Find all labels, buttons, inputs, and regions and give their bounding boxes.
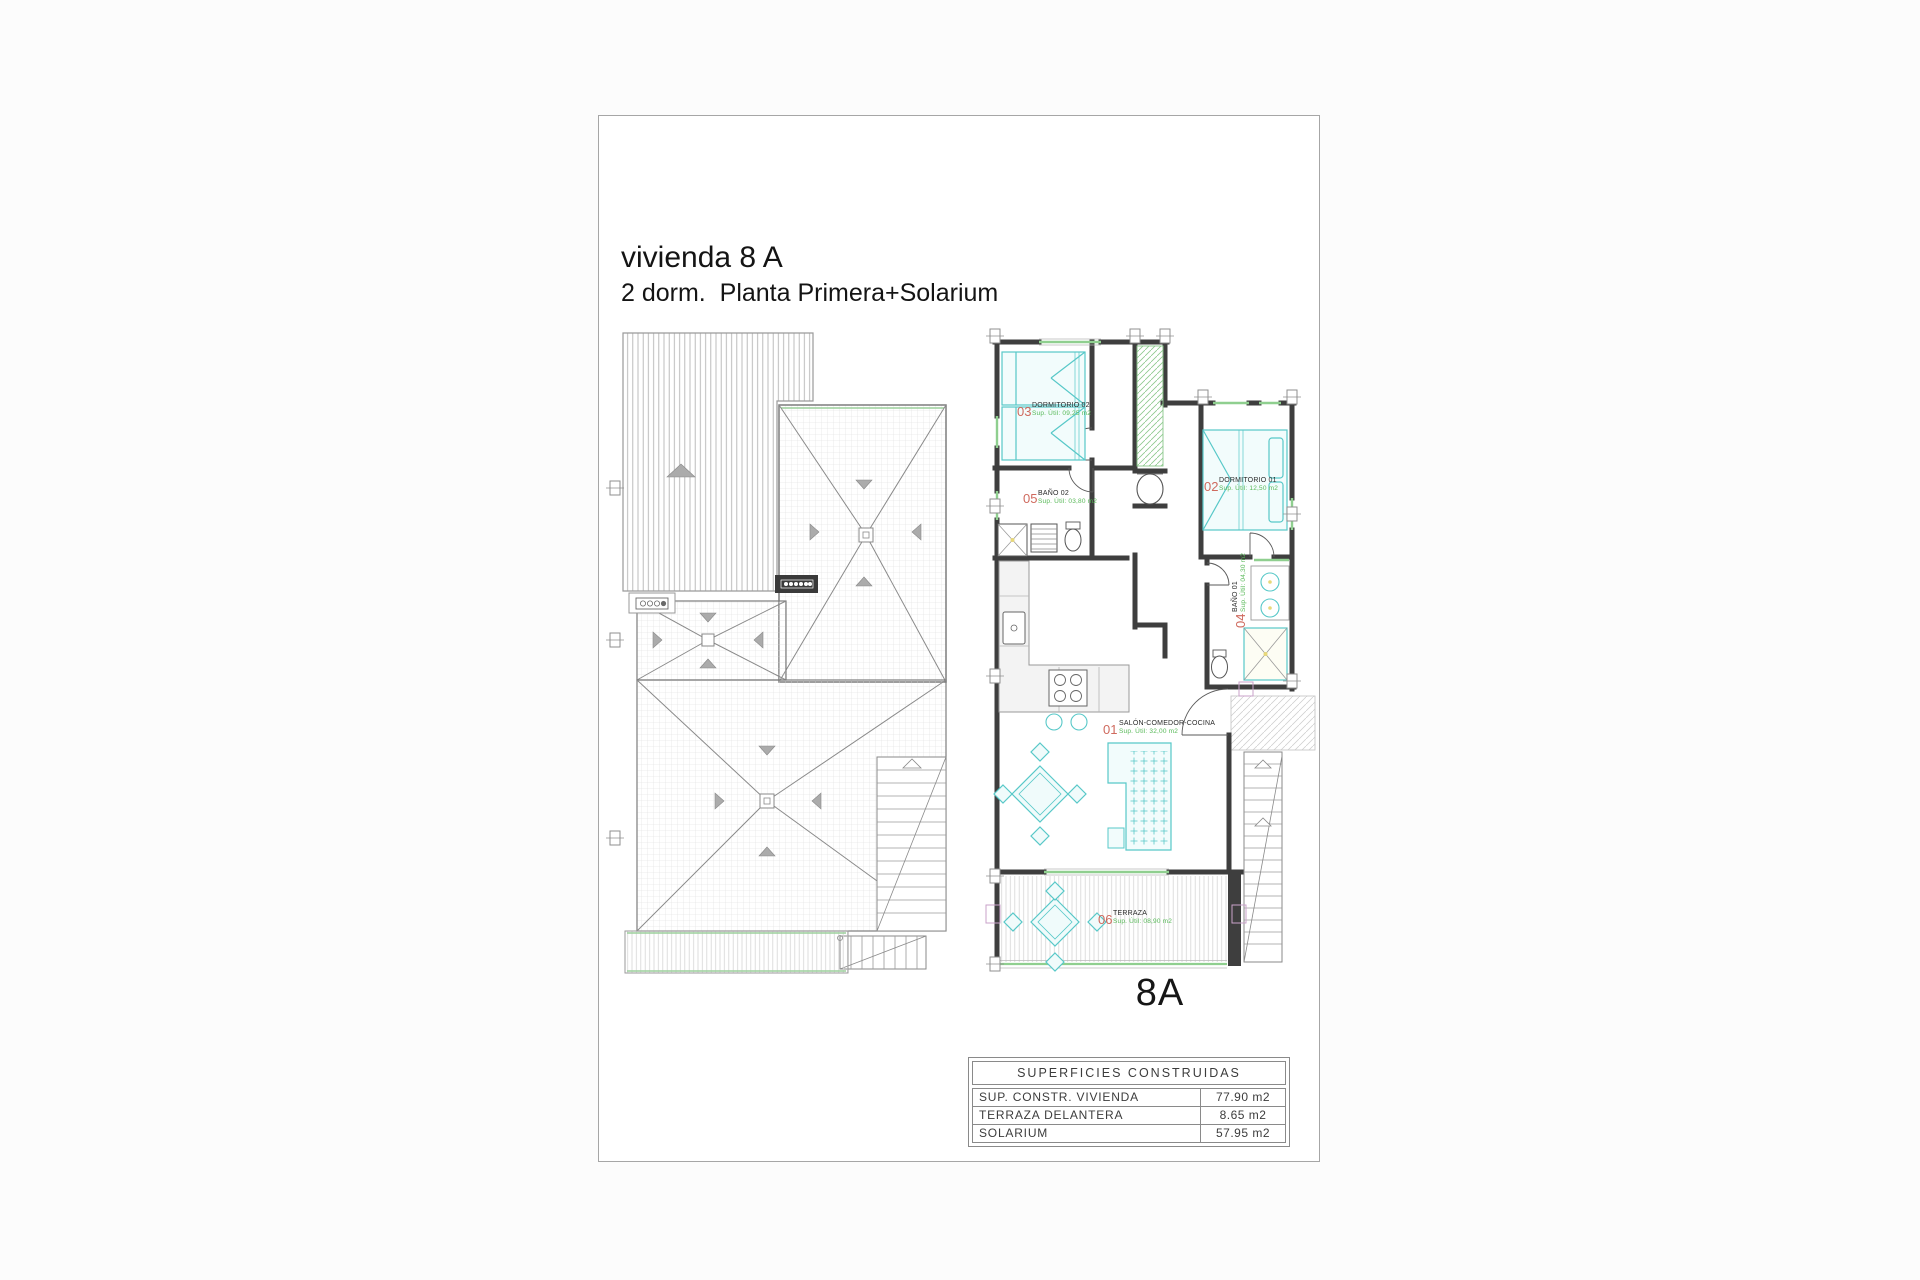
room-area: Sup. Útil: 09,25 m2	[1032, 408, 1091, 417]
room-number: 01	[1103, 722, 1117, 737]
floorplan-drawing: 03 DORMITORIO 02 Sup. Útil: 09,25 m2 05 …	[599, 116, 1321, 1163]
room-name: SALÓN-COMEDOR-COCINA	[1119, 718, 1215, 727]
area-value: 57.95 m2	[1200, 1125, 1285, 1142]
room-number: 04	[1233, 614, 1248, 628]
room-area: Sup. Útil: 12,50 m2	[1219, 483, 1278, 492]
room-number: 06	[1098, 912, 1112, 927]
room-area: Sup. Útil: 04,30 m2	[1238, 553, 1247, 612]
solarium-terrace-strip	[625, 931, 848, 973]
unit-label: 8A	[1118, 972, 1202, 1015]
room-area: Sup. Útil: 03,80 m2	[1038, 496, 1097, 505]
room-number: 03	[1017, 404, 1031, 419]
room-name: DORMITORIO 01	[1219, 477, 1277, 484]
roof-hip-upper	[779, 405, 946, 682]
dining-table	[994, 743, 1086, 845]
section-tick	[606, 831, 624, 845]
section-tick	[606, 481, 624, 495]
area-value: 77.90 m2	[1200, 1089, 1285, 1106]
exterior-hatch	[1231, 696, 1315, 750]
side-table	[1108, 828, 1124, 848]
solarium-lower-stairs	[840, 936, 926, 969]
room-label-dormitorio-01: 02 DORMITORIO 01 Sup. Útil: 12,50 m2	[1204, 477, 1278, 494]
solarium-stairs	[877, 757, 946, 931]
kitchen-sink	[1003, 612, 1025, 644]
room-name: TERRAZA	[1113, 910, 1147, 917]
section-tick	[606, 633, 624, 647]
table-row: SOLARIUM 57.95 m2	[973, 1124, 1285, 1142]
stool	[1046, 714, 1062, 730]
room-number: 02	[1204, 479, 1218, 494]
room-label-dormitorio-02: 03 DORMITORIO 02 Sup. Útil: 09,25 m2	[1017, 402, 1091, 419]
white-stamp-label	[629, 593, 675, 613]
areas-table-header: SUPERFICIES CONSTRUIDAS	[972, 1061, 1286, 1085]
room-area: Sup. Útil: 08,90 m2	[1113, 916, 1172, 925]
black-stamp-label	[775, 575, 818, 593]
room-name: DORMITORIO 02	[1032, 402, 1090, 409]
table-row: SUP. CONSTR. VIVIENDA 77.90 m2	[973, 1089, 1285, 1106]
area-value: 8.65 m2	[1200, 1107, 1285, 1124]
room-number: 05	[1023, 491, 1037, 506]
kitchen-counter	[999, 561, 1129, 730]
hall-basin	[1137, 474, 1163, 504]
room-name: BAÑO 01	[1230, 581, 1239, 612]
sofa	[1108, 743, 1171, 850]
first-floor-plan: 03 DORMITORIO 02 Sup. Útil: 09,25 m2 05 …	[986, 329, 1315, 971]
bathroom-02-fixtures	[998, 522, 1081, 556]
drawing-sheet: vivienda 8 A 2 dorm. Planta Primera+Sola…	[598, 115, 1320, 1162]
room-label-bano-01: 04 BAÑO 01 Sup. Útil: 04,30 m2	[1230, 553, 1248, 628]
exterior-stairs	[1244, 752, 1282, 962]
room-name: BAÑO 02	[1038, 488, 1069, 497]
area-label: SOLARIUM	[973, 1125, 1200, 1142]
bathroom-01-fixtures	[1212, 566, 1290, 680]
area-label: SUP. CONSTR. VIVIENDA	[973, 1089, 1200, 1106]
areas-table-body: SUP. CONSTR. VIVIENDA 77.90 m2 TERRAZA D…	[972, 1088, 1286, 1143]
stool	[1071, 714, 1087, 730]
areas-table: SUPERFICIES CONSTRUIDAS SUP. CONSTR. VIV…	[968, 1057, 1290, 1147]
table-row: TERRAZA DELANTERA 8.65 m2	[973, 1106, 1285, 1124]
wardrobe	[1137, 346, 1163, 466]
terrace-pillar	[1228, 874, 1241, 966]
stove	[1049, 670, 1087, 706]
room-area: Sup. Útil: 32,00 m2	[1119, 726, 1178, 735]
room-label-salon: 01 SALÓN-COMEDOR-COCINA Sup. Útil: 32,00…	[1103, 718, 1215, 737]
area-label: TERRAZA DELANTERA	[973, 1107, 1200, 1124]
solarium-roof-plan	[606, 333, 946, 973]
